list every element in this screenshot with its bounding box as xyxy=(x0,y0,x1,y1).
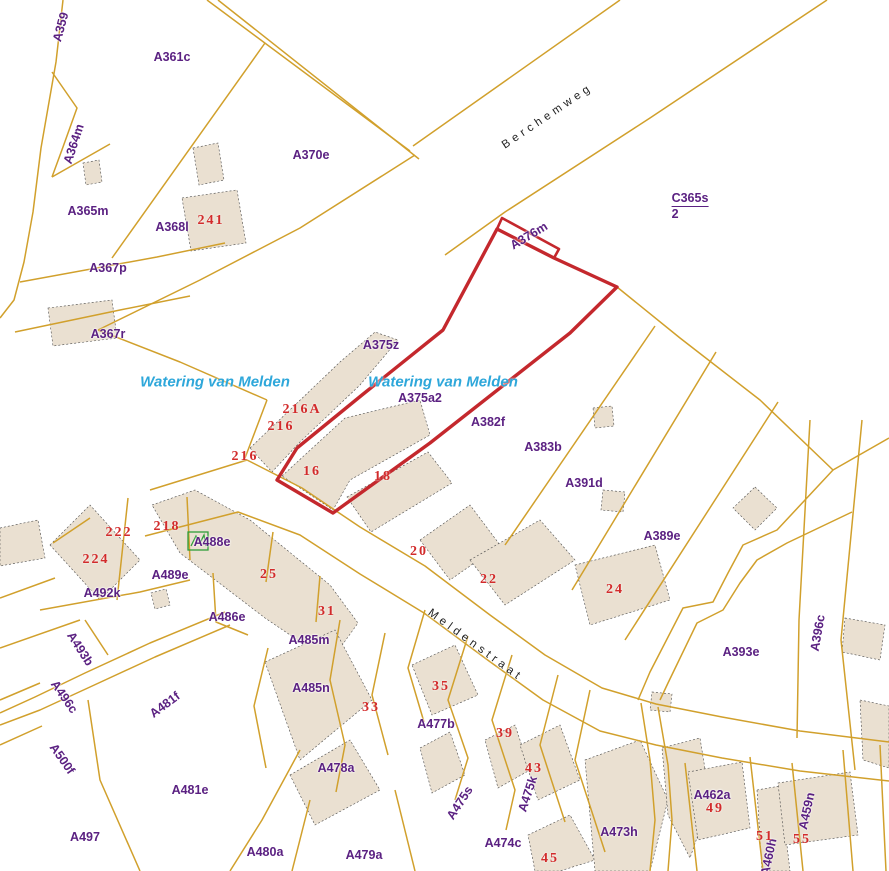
house-number-222: 222 xyxy=(106,526,133,540)
house-number-216a: 216A xyxy=(282,403,321,417)
building xyxy=(860,700,889,768)
fraction-numerator: C365s xyxy=(672,192,709,207)
parcel-label-a389e: A389e xyxy=(644,530,681,543)
building xyxy=(585,740,668,871)
building xyxy=(528,815,595,871)
parcel-label-a474c: A474c xyxy=(485,837,522,850)
parcel-label-c365s-2: C365s 2 xyxy=(672,192,709,220)
parcel-label-a391d: A391d xyxy=(565,477,603,490)
building xyxy=(650,692,672,712)
building xyxy=(83,160,102,185)
parcel-label-a368l: A368l xyxy=(155,221,188,234)
parcel-label-a462a: A462a xyxy=(694,789,731,802)
building xyxy=(0,520,45,566)
house-number-22: 22 xyxy=(480,573,498,587)
map-layers xyxy=(0,0,889,871)
building xyxy=(193,143,224,185)
building xyxy=(151,589,170,609)
house-number-35: 35 xyxy=(432,680,450,694)
house-number-16: 16 xyxy=(303,465,321,479)
building xyxy=(265,630,372,760)
parcel-label-a477b: A477b xyxy=(417,718,455,731)
parcel-label-a370e: A370e xyxy=(293,149,330,162)
parcel-label-a479a: A479a xyxy=(346,849,383,862)
water-label: Watering van Melden xyxy=(368,375,518,390)
parcel-label-a480a: A480a xyxy=(247,846,284,859)
parcel-label-a489e: A489e xyxy=(152,569,189,582)
building xyxy=(420,732,465,793)
house-number-224: 224 xyxy=(83,553,110,567)
fraction-denominator: 2 xyxy=(672,208,709,221)
house-number-45: 45 xyxy=(541,852,559,866)
house-number-31: 31 xyxy=(318,605,336,619)
parcel-label-a486e: A486e xyxy=(209,611,246,624)
house-number-218: 218 xyxy=(154,520,181,534)
parcel-label-a488e: A488e xyxy=(194,536,231,549)
water-label: Watering van Melden xyxy=(140,375,290,390)
parcel-label-a367r: A367r xyxy=(91,328,126,341)
parcel-label-a375z: A375z xyxy=(363,339,399,352)
house-number-24: 24 xyxy=(606,583,624,597)
parcel-label-a375a2: A375a2 xyxy=(398,392,442,405)
building xyxy=(842,618,885,660)
parcel-label-a361c: A361c xyxy=(154,51,191,64)
parcel-label-a365m: A365m xyxy=(68,205,109,218)
parcel-label-a383b: A383b xyxy=(524,441,562,454)
parcel-label-a367p: A367p xyxy=(89,262,127,275)
parcel-label-a393e: A393e xyxy=(723,646,760,659)
building xyxy=(733,487,777,530)
buildings-layer xyxy=(0,143,889,871)
house-number-18: 18 xyxy=(374,470,392,484)
map-canvas[interactable]: Berchemweg Meldenstraat Watering van Mel… xyxy=(0,0,889,871)
building xyxy=(593,406,614,428)
house-number-55: 55 xyxy=(793,833,811,847)
house-number-25: 25 xyxy=(260,568,278,582)
house-number-51: 51 xyxy=(756,830,774,844)
parcel-label-a478a: A478a xyxy=(318,762,355,775)
parcel-label-a481e: A481e xyxy=(172,784,209,797)
parcel-label-a485n: A485n xyxy=(292,682,330,695)
house-number-216: 216 xyxy=(268,420,295,434)
parcel-label-a492k: A492k xyxy=(84,587,121,600)
parcel-label-a473h: A473h xyxy=(600,826,638,839)
house-number-241: 241 xyxy=(198,214,225,228)
house-number-216: 216 xyxy=(232,450,259,464)
parcel-label-a497: A497 xyxy=(70,831,100,844)
house-number-49: 49 xyxy=(706,802,724,816)
parcel-label-a382f: A382f xyxy=(471,416,505,429)
house-number-39: 39 xyxy=(496,727,514,741)
house-number-33: 33 xyxy=(362,701,380,715)
house-number-43: 43 xyxy=(525,762,543,776)
parcel-label-a485m: A485m xyxy=(289,634,330,647)
house-number-20: 20 xyxy=(410,545,428,559)
